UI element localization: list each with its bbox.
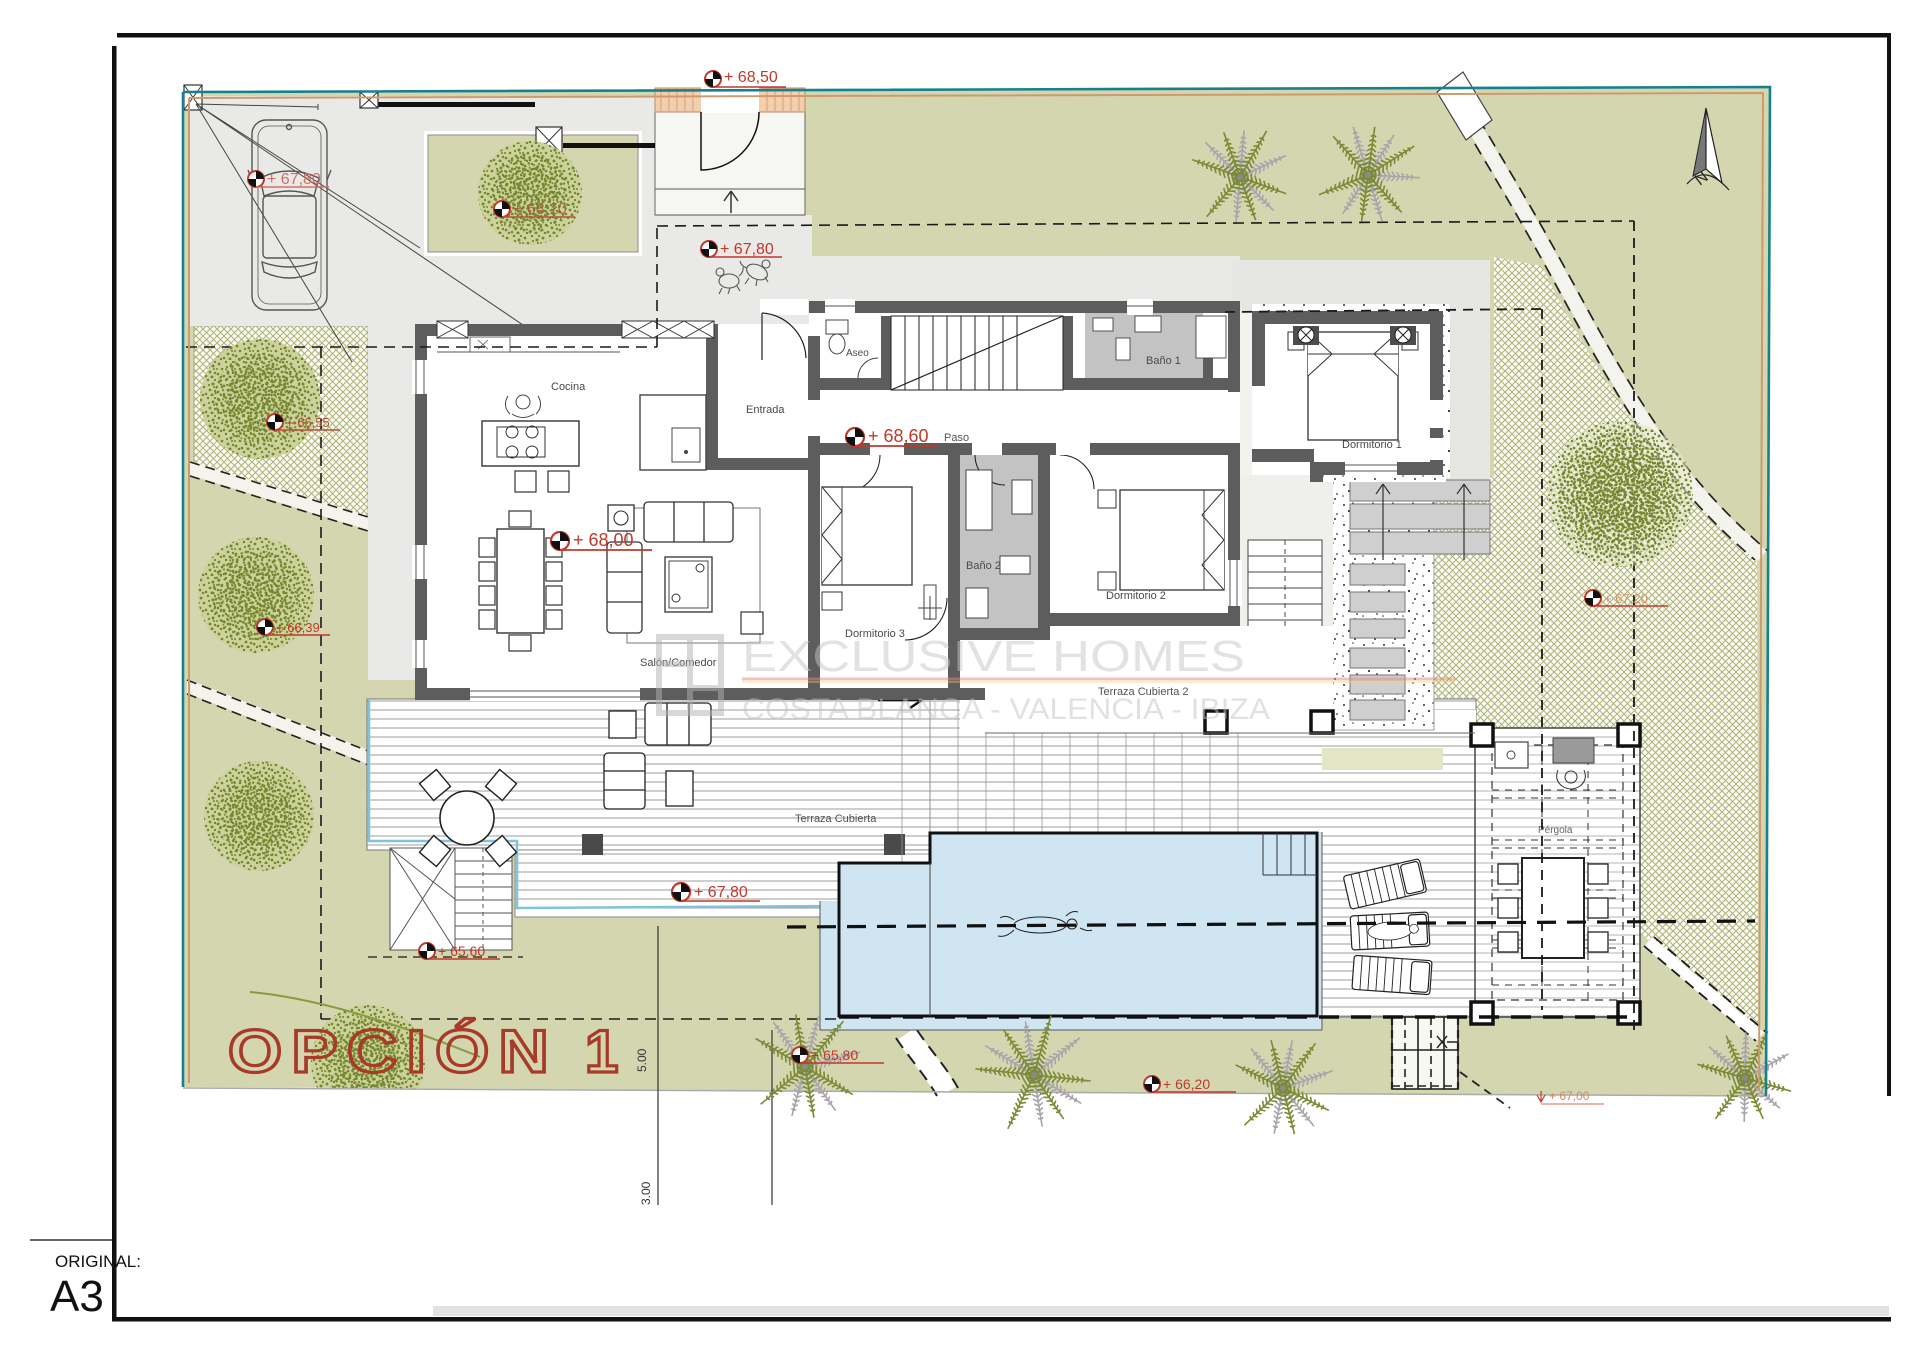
svg-text:Baño 1: Baño 1 (1146, 355, 1181, 367)
svg-text:+ 67,80: + 67,80 (720, 241, 774, 258)
svg-text:+ 68,00: + 68,00 (573, 530, 634, 550)
svg-text:+ 66,55: + 66,55 (286, 415, 330, 430)
svg-text:+ 66,39: + 66,39 (276, 620, 320, 635)
svg-text:Entrada: Entrada (746, 404, 785, 416)
svg-text:+ 65,80: + 65,80 (811, 1047, 858, 1063)
svg-text:Dormitorio 1: Dormitorio 1 (1342, 439, 1402, 451)
svg-text:OPCIÓN: OPCIÓN (228, 1018, 558, 1085)
svg-text:COSTA BLANCA - VALENCIA - IBIZ: COSTA BLANCA - VALENCIA - IBIZA (742, 693, 1270, 726)
svg-text:+ 68,10: + 68,10 (513, 201, 567, 218)
svg-text:3.00: 3.00 (639, 1181, 653, 1205)
svg-text:Pérgola: Pérgola (1538, 825, 1573, 836)
svg-text:+ 68,50: + 68,50 (724, 69, 778, 86)
svg-text:Paso: Paso (944, 432, 969, 444)
svg-text:+ 68,60: + 68,60 (868, 426, 929, 446)
svg-text:Cocina: Cocina (551, 381, 586, 393)
svg-text:Terraza Cubierta: Terraza Cubierta (795, 813, 877, 825)
svg-text:+ 67,80: + 67,80 (267, 171, 321, 188)
svg-text:ORIGINAL:: ORIGINAL: (55, 1252, 141, 1271)
svg-text:+ 67,00: + 67,00 (1549, 1089, 1590, 1103)
svg-text:5.00: 5.00 (635, 1048, 649, 1072)
svg-text:+ 65,60: + 65,60 (438, 943, 485, 959)
svg-text:Baño 2: Baño 2 (966, 560, 1001, 572)
svg-text:EXCLUSIVE HOMES: EXCLUSIVE HOMES (742, 632, 1245, 681)
svg-text:Aseo: Aseo (846, 348, 869, 359)
svg-text:+ 67,20: + 67,20 (1604, 591, 1648, 606)
svg-text:A3: A3 (50, 1272, 104, 1321)
svg-text:Dormitorio 2: Dormitorio 2 (1106, 590, 1166, 602)
svg-text:1: 1 (585, 1018, 618, 1085)
svg-text:+ 66,20: + 66,20 (1163, 1076, 1210, 1092)
svg-text:+ 67,80: + 67,80 (694, 884, 748, 901)
